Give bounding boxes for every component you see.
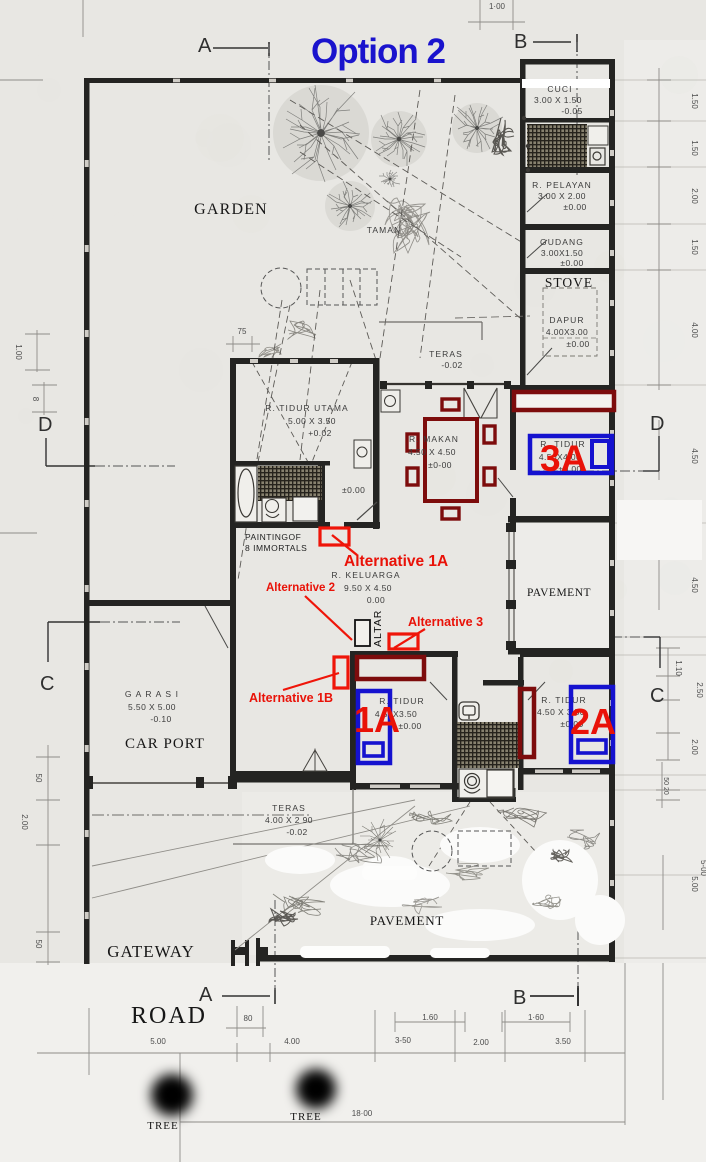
- svg-text:50: 50: [34, 940, 43, 949]
- svg-text:R. MAKAN: R. MAKAN: [409, 434, 459, 444]
- svg-text:1.10: 1.10: [674, 660, 683, 676]
- svg-text:R. TIDUR UTAMA: R. TIDUR UTAMA: [265, 403, 349, 413]
- svg-text:3A: 3A: [540, 438, 587, 479]
- svg-text:2A: 2A: [570, 701, 616, 742]
- svg-text:TERAS: TERAS: [429, 349, 463, 359]
- svg-text:-0.02: -0.02: [286, 827, 307, 837]
- svg-text:1.60: 1.60: [422, 1013, 438, 1022]
- svg-text:GATEWAY: GATEWAY: [107, 942, 195, 961]
- svg-text:5-00: 5-00: [699, 860, 706, 877]
- svg-text:GUDANG: GUDANG: [540, 237, 584, 247]
- svg-text:50 20: 50 20: [662, 777, 669, 795]
- svg-text:3.00 X 2.00: 3.00 X 2.00: [538, 191, 586, 201]
- svg-text:4.00: 4.00: [690, 322, 699, 338]
- svg-text:C: C: [650, 685, 664, 707]
- svg-text:G A R A S I: G A R A S I: [125, 689, 179, 699]
- svg-text:2.00: 2.00: [20, 814, 29, 830]
- svg-text:4.50: 4.50: [690, 577, 699, 593]
- svg-text:PAVEMENT: PAVEMENT: [527, 587, 591, 599]
- svg-text:4.50: 4.50: [690, 448, 699, 464]
- svg-text:B: B: [513, 987, 526, 1009]
- svg-text:1·00: 1·00: [489, 2, 506, 11]
- svg-text:PAINTINGOF: PAINTINGOF: [245, 532, 301, 542]
- svg-text:18·00: 18·00: [352, 1109, 373, 1118]
- svg-text:±0.00: ±0.00: [566, 339, 589, 349]
- svg-text:GARDEN: GARDEN: [194, 201, 268, 218]
- svg-text:8 IMMORTALS: 8 IMMORTALS: [245, 543, 307, 553]
- svg-text:±0-00: ±0-00: [428, 460, 452, 470]
- svg-text:CAR PORT: CAR PORT: [125, 736, 205, 752]
- svg-text:PAVEMENT: PAVEMENT: [370, 913, 444, 928]
- svg-text:4.00: 4.00: [284, 1037, 300, 1046]
- svg-text:CUCI: CUCI: [547, 84, 572, 94]
- svg-text:1A: 1A: [354, 699, 400, 740]
- svg-text:-0.10: -0.10: [150, 714, 171, 724]
- svg-text:-0.05: -0.05: [561, 106, 582, 116]
- svg-text:D: D: [650, 413, 664, 435]
- svg-text:50: 50: [34, 774, 43, 783]
- svg-text:TAMAN: TAMAN: [367, 225, 402, 235]
- svg-text:1·60: 1·60: [528, 1013, 545, 1022]
- svg-text:STOVE: STOVE: [545, 275, 593, 290]
- svg-text:+0.02: +0.02: [308, 428, 332, 438]
- svg-text:4.00 X 2 90: 4.00 X 2 90: [265, 815, 313, 825]
- svg-text:Alternative 3: Alternative 3: [408, 615, 483, 629]
- svg-text:TERAS: TERAS: [272, 803, 306, 813]
- svg-text:1.50: 1.50: [690, 140, 699, 156]
- svg-text:Alternative 1A: Alternative 1A: [344, 553, 448, 570]
- svg-text:Alternative 2: Alternative 2: [266, 582, 335, 594]
- svg-text:Alternative 1B: Alternative 1B: [249, 691, 333, 705]
- svg-text:1.00: 1.00: [14, 344, 23, 360]
- svg-text:5.00: 5.00: [690, 876, 699, 892]
- svg-text:D: D: [38, 414, 52, 436]
- svg-text:3.00 X 1.50: 3.00 X 1.50: [534, 95, 582, 105]
- svg-text:ROAD: ROAD: [131, 1003, 207, 1029]
- svg-text:1.50: 1.50: [690, 239, 699, 255]
- svg-text:R. PELAYAN: R. PELAYAN: [532, 180, 592, 190]
- svg-text:±0.00: ±0.00: [563, 202, 586, 212]
- svg-text:2.00: 2.00: [690, 188, 699, 204]
- svg-text:±0.00: ±0.00: [560, 258, 583, 268]
- svg-text:5.00 X 3.50: 5.00 X 3.50: [288, 416, 336, 426]
- svg-text:TREE: TREE: [147, 1120, 179, 1132]
- svg-text:2.00: 2.00: [473, 1038, 489, 1047]
- svg-text:9.50 X 4.50: 9.50 X 4.50: [344, 583, 392, 593]
- svg-text:-0.02: -0.02: [441, 360, 462, 370]
- svg-text:DAPUR: DAPUR: [549, 315, 584, 325]
- svg-text:3.50: 3.50: [555, 1037, 571, 1046]
- svg-text:5.50 X 5.00: 5.50 X 5.00: [128, 702, 176, 712]
- svg-text:TREE: TREE: [290, 1111, 322, 1123]
- svg-text:2.50: 2.50: [695, 682, 704, 698]
- svg-text:A: A: [198, 35, 212, 57]
- svg-text:4.00X3.00: 4.00X3.00: [546, 327, 588, 337]
- svg-text:2.00: 2.00: [690, 739, 699, 755]
- svg-text:±0.00: ±0.00: [342, 485, 365, 495]
- svg-text:C: C: [40, 673, 54, 695]
- svg-text:B: B: [514, 31, 527, 53]
- svg-text:±0.00: ±0.00: [398, 721, 421, 731]
- svg-text:1.50: 1.50: [690, 93, 699, 109]
- svg-text:3-50: 3-50: [395, 1036, 412, 1045]
- svg-text:4.50 X 4.50: 4.50 X 4.50: [408, 447, 456, 457]
- svg-text:8: 8: [31, 397, 40, 402]
- svg-text:ALTAR: ALTAR: [372, 610, 384, 647]
- svg-text:R. KELUARGA: R. KELUARGA: [331, 570, 400, 580]
- svg-text:5.00: 5.00: [150, 1037, 166, 1046]
- svg-text:0.00: 0.00: [367, 595, 385, 605]
- svg-text:75: 75: [238, 327, 247, 336]
- svg-text:Option 2: Option 2: [311, 32, 445, 71]
- svg-text:3.00X1.50: 3.00X1.50: [541, 248, 583, 258]
- svg-text:80: 80: [244, 1014, 253, 1023]
